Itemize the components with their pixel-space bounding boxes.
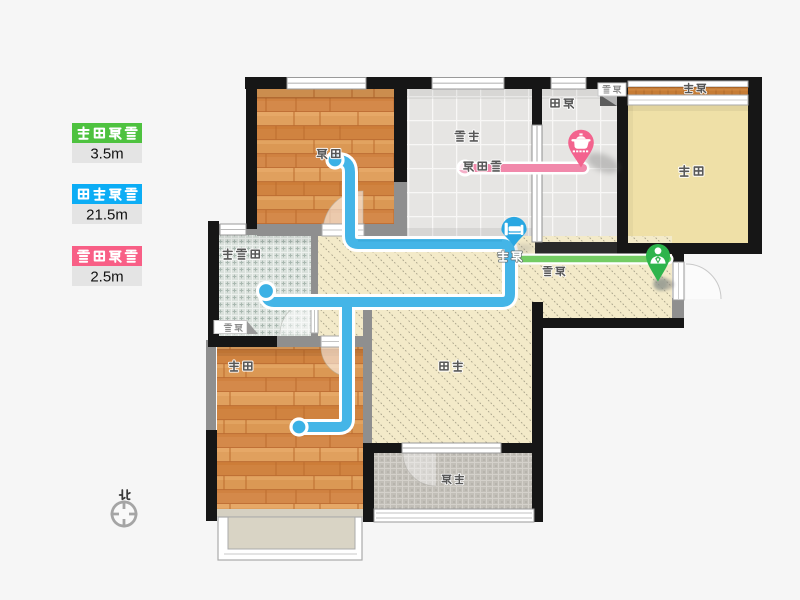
svg-text:2.5m: 2.5m: [90, 269, 123, 286]
svg-text:21.5m: 21.5m: [86, 207, 128, 224]
svg-text:3.5m: 3.5m: [90, 146, 123, 163]
